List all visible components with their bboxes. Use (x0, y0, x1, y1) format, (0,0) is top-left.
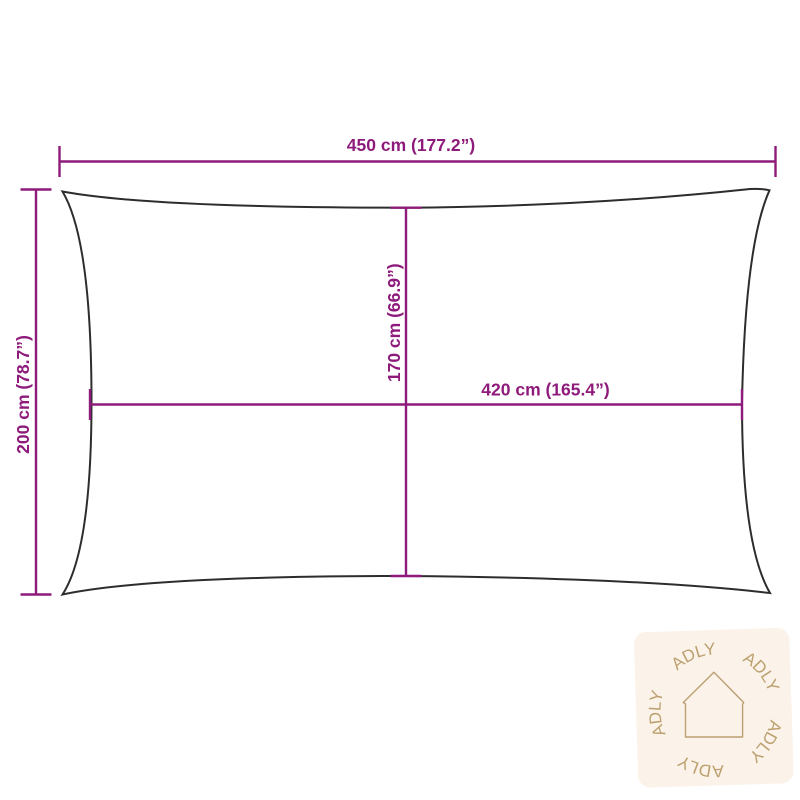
svg-text:450 cm (177.2”): 450 cm (177.2”) (347, 135, 475, 155)
svg-text:420 cm (165.4”): 420 cm (165.4”) (481, 380, 609, 400)
svg-text:170 cm (66.9”): 170 cm (66.9”) (384, 263, 404, 382)
svg-text:200 cm (78.7”): 200 cm (78.7”) (13, 335, 33, 454)
